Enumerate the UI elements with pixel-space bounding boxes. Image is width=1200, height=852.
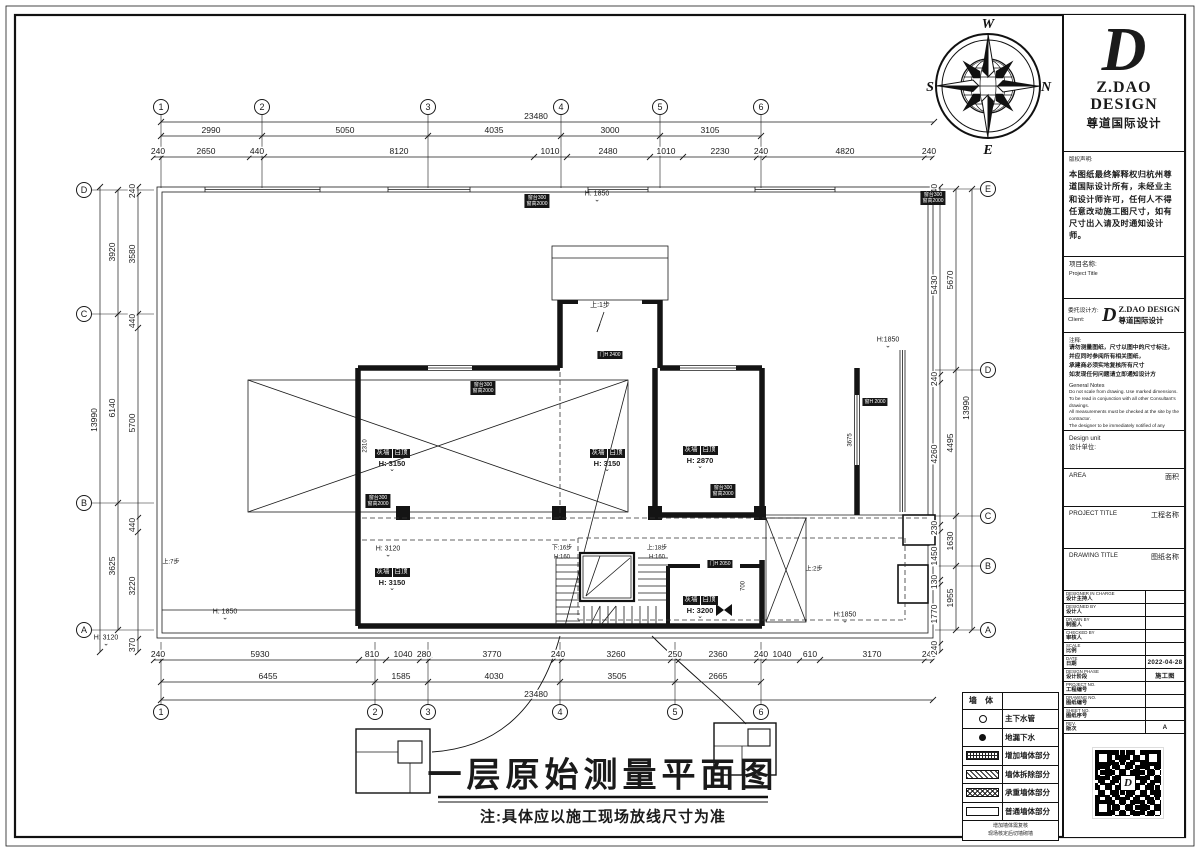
- dim-label: 2360: [708, 650, 729, 659]
- dim-label: 1955: [946, 588, 955, 609]
- copyright-label: 版权声明:: [1069, 155, 1179, 163]
- title-block-row: DRAWN BY制图人: [1064, 617, 1184, 630]
- legend-symbol-hatch-dense: [966, 751, 999, 760]
- wall-height-tag: 门H 2050: [707, 560, 732, 568]
- project-title-cn: 工程名称: [1151, 510, 1179, 545]
- title-block-table: DESIGNER IN CHARGE设计主持人DESIGNED BY设计人DRA…: [1064, 591, 1184, 734]
- dim-label: 810: [364, 650, 380, 659]
- plan-annotation: 上:2步: [805, 567, 822, 574]
- wall-height-tag: 窗H 2000: [862, 398, 887, 406]
- room-finish-tag: 灰墙白顶H: 3150⌄: [374, 560, 410, 591]
- dim-label: 240: [550, 650, 566, 659]
- dim-label: 2480: [598, 147, 619, 156]
- dim-label: 1585: [391, 672, 412, 681]
- copyright-section: 版权声明: 本图纸最终解释权归杭州尊道国际设计所有，未经业主和设计师许可，任何人…: [1064, 152, 1184, 257]
- company-logo: D Z.DAO DESIGN 尊道国际设计: [1064, 15, 1184, 152]
- dim-label: 3505: [607, 672, 628, 681]
- notes-cn-label: 注释:: [1069, 336, 1179, 344]
- legend-label: 墙体拆除部分: [1003, 769, 1058, 780]
- legend-label: 增加墙体部分: [1003, 750, 1058, 761]
- logo-name-1: Z.DAO: [1064, 80, 1184, 97]
- plan-annotation: H:160: [649, 555, 665, 562]
- legend-row: 承重墙体部分: [963, 784, 1058, 803]
- grid-bubble-D: D: [980, 362, 996, 378]
- dim-label: 240: [753, 650, 769, 659]
- dim-label: 23480: [523, 690, 549, 699]
- project-name-section: 项目名称: Project Title: [1064, 257, 1184, 299]
- title-block-value: 2022-04-28: [1146, 656, 1184, 668]
- grid-bubble-4: 4: [553, 99, 569, 115]
- title-block-value: [1146, 695, 1184, 707]
- drawing-title-cn: 图纸名称: [1151, 552, 1179, 587]
- client-label-cn: 委托设计方:: [1068, 307, 1102, 316]
- plan-annotation: 2310: [363, 439, 370, 452]
- title-block-value: [1146, 630, 1184, 642]
- wall-height-tag: 门H 2400: [597, 351, 622, 359]
- drawing-title-section: DRAWING TITLE 图纸名称: [1064, 549, 1184, 591]
- room-finish-tag: 灰墙白顶H: 3150⌄: [589, 441, 625, 472]
- title-block-row: DESIGNED BY设计人: [1064, 604, 1184, 617]
- grid-bubble-1: 1: [153, 99, 169, 115]
- dim-label: 440: [128, 517, 137, 533]
- dim-label: 13990: [90, 407, 99, 433]
- wall-height-tag: 窗台300窗高2000: [470, 381, 495, 395]
- grid-bubble-E: E: [980, 181, 996, 197]
- logo-name-2: DESIGN: [1064, 97, 1184, 114]
- legend-row: 普通墙体部分: [963, 803, 1058, 822]
- grid-bubble-2: 2: [254, 99, 270, 115]
- dim-label: 23480: [523, 112, 549, 121]
- grid-bubble-A: A: [980, 622, 996, 638]
- dim-label: 3920: [108, 242, 117, 263]
- dim-label: 4035: [484, 126, 505, 135]
- grid-bubble-1: 1: [153, 704, 169, 720]
- dim-label: 5670: [946, 270, 955, 291]
- plan-annotation: H:1850⌄: [877, 336, 900, 347]
- dim-label: 440: [249, 147, 265, 156]
- dim-label: 5930: [250, 650, 271, 659]
- room-finish-tag: 灰墙白顶H: 3200⌄: [682, 588, 718, 619]
- dim-label: 240: [128, 183, 137, 199]
- plan-annotation: H:1850⌄: [834, 611, 857, 622]
- title-block-row: REV.版次A: [1064, 721, 1184, 734]
- grid-bubble-C: C: [980, 508, 996, 524]
- legend-footnote-2: 现场核定后切墙砌墙: [963, 831, 1058, 839]
- dim-label: 440: [128, 313, 137, 329]
- qr-code: D: [1093, 748, 1163, 818]
- design-unit-cn: 设计单位:: [1069, 443, 1179, 452]
- client-logo: D Z.DAO DESIGN 尊道国际设计: [1102, 304, 1180, 327]
- room-finish-tag: 灰墙白顶H: 2870⌄: [682, 438, 718, 469]
- project-title-en: PROJECT TITLE: [1069, 510, 1117, 545]
- wall-height-tag: 窗台300窗高2000: [524, 194, 549, 208]
- title-block: D Z.DAO DESIGN 尊道国际设计 版权声明: 本图纸最终解释权归杭州尊…: [1062, 15, 1184, 837]
- qr-center-logo: D: [1120, 775, 1136, 791]
- legend-footnote-1: 增加墙体需复核: [963, 823, 1058, 831]
- area-section: AREA 面积: [1064, 469, 1184, 507]
- wall-height-tag: 窗台300窗高2000: [710, 484, 735, 498]
- dim-label: 5700: [128, 413, 137, 434]
- plan-annotation: H: 3120⌄: [94, 634, 119, 645]
- legend-row: 增加墙体部分: [963, 747, 1058, 766]
- copyright-text: 本图纸最终解释权归杭州尊道国际设计所有，未经业主和设计师许可，任何人不得任意改动…: [1069, 169, 1179, 243]
- project-label-en: Project Title: [1069, 270, 1179, 278]
- plan-annotation: 下:16步: [552, 546, 572, 553]
- title-block-value: [1146, 591, 1184, 603]
- title-block-row: DESIGNER IN CHARGE设计主持人: [1064, 591, 1184, 604]
- grid-bubble-3: 3: [420, 99, 436, 115]
- grid-bubble-5: 5: [667, 704, 683, 720]
- grid-bubble-A: A: [76, 622, 92, 638]
- dim-label: 1770: [930, 604, 939, 625]
- legend-symbol-circle: [979, 715, 987, 723]
- plan-annotation: H: 3120⌄: [376, 545, 401, 556]
- legend-symbol-dot: [979, 734, 986, 741]
- dim-label: 1040: [772, 650, 793, 659]
- client-section: 委托设计方: Client: D Z.DAO DESIGN 尊道国际设计: [1064, 299, 1184, 333]
- title-block-row: DESIGN PHASE设计阶段施工图: [1064, 669, 1184, 682]
- client-label-en: Client:: [1068, 316, 1102, 325]
- grid-bubble-4: 4: [552, 704, 568, 720]
- grid-bubble-6: 6: [753, 704, 769, 720]
- dim-label: 4820: [835, 147, 856, 156]
- general-notes-section: 注释: 请勿测量图纸，尺寸以图中的尺寸标注，并应同时参阅所有相关图纸，承建商必须…: [1064, 333, 1184, 431]
- logo-cn: 尊道国际设计: [1064, 115, 1184, 131]
- legend-label: 主下水管: [1003, 713, 1058, 724]
- dim-label: 2990: [201, 126, 222, 135]
- plan-annotation: 上:1步: [590, 302, 610, 310]
- plan-annotation: 3675: [848, 433, 855, 446]
- legend-row: 墙体拆除部分: [963, 766, 1058, 785]
- plan-annotation: H: 1850⌄: [213, 608, 238, 619]
- dim-label: 8120: [389, 147, 410, 156]
- title-block-value: [1146, 617, 1184, 629]
- legend-symbol-hatch-diag: [966, 770, 999, 779]
- project-title-section: PROJECT TITLE 工程名称: [1064, 507, 1184, 549]
- grid-bubble-B: B: [76, 495, 92, 511]
- dim-label: 370: [128, 637, 137, 653]
- title-block-row: SCALE比例: [1064, 643, 1184, 656]
- legend-label: 普通墙体部分: [1003, 806, 1058, 817]
- dim-label: 3000: [600, 126, 621, 135]
- legend-label: 地漏下水: [1003, 732, 1058, 743]
- plan-annotation: H:160: [554, 555, 570, 562]
- title-block-row: DRAWING NO.图纸编号: [1064, 695, 1184, 708]
- plan-annotation: 上:7步: [162, 560, 179, 567]
- dim-label: 5050: [335, 126, 356, 135]
- grid-bubble-D: D: [76, 182, 92, 198]
- drawing-sheet: W S E N 23480299050504035300031052402650…: [0, 0, 1200, 852]
- legend-row: 主下水管: [963, 710, 1058, 729]
- room-finish-tag: 灰墙白顶H: 3150⌄: [374, 441, 410, 472]
- title-block-row: PROJECT NO.工程编号: [1064, 682, 1184, 695]
- dim-label: 280: [416, 650, 432, 659]
- logo-d-mark: D: [1064, 21, 1184, 80]
- area-cn: 面积: [1165, 472, 1179, 503]
- legend-symbol-hatch-cross: [966, 788, 999, 797]
- title-block-value: [1146, 708, 1184, 720]
- dim-label: 240: [930, 640, 939, 656]
- dim-label: 3770: [482, 650, 503, 659]
- dim-label: 230: [930, 520, 939, 536]
- dim-label: 5430: [930, 275, 939, 296]
- plan-annotation: 上:18步: [647, 546, 667, 553]
- dim-label: 1450: [930, 546, 939, 567]
- dim-label: 240: [921, 147, 937, 156]
- title-block-value: [1146, 682, 1184, 694]
- title-block-row: CHECKED BY审核人: [1064, 630, 1184, 643]
- plan-annotation: H: 1850⌄: [585, 190, 610, 201]
- title-block-row: SHEET NO.图纸序号: [1064, 708, 1184, 721]
- grid-bubble-C: C: [76, 306, 92, 322]
- dim-label: 3170: [862, 650, 883, 659]
- title-block-value: A: [1146, 721, 1184, 733]
- grid-bubble-6: 6: [753, 99, 769, 115]
- design-unit-en: Design unit: [1069, 434, 1179, 443]
- drawing-title-en: DRAWING TITLE: [1069, 552, 1118, 587]
- dim-label: 6455: [258, 672, 279, 681]
- legend-label: 承重墙体部分: [1003, 787, 1058, 798]
- project-label-cn: 项目名称:: [1069, 260, 1179, 270]
- dim-label: 4260: [930, 444, 939, 465]
- drawing-note: 注:具体应以施工现场放线尺寸为准: [480, 806, 726, 827]
- dim-label: 3580: [128, 244, 137, 265]
- dim-label: 130: [930, 574, 939, 590]
- wall-legend: 墙 体 主下水管地漏下水增加墙体部分墙体拆除部分承重墙体部分普通墙体部分 增加墙…: [962, 692, 1059, 841]
- wall-height-tag: 窗台300窗高2000: [920, 191, 945, 205]
- dim-label: 1630: [946, 531, 955, 552]
- dim-label: 2230: [710, 147, 731, 156]
- client-logo-cn: 尊道国际设计: [1118, 315, 1179, 326]
- dim-label: 1010: [656, 147, 677, 156]
- title-block-value: [1146, 604, 1184, 616]
- dim-label: 2665: [708, 672, 729, 681]
- grid-bubble-B: B: [980, 558, 996, 574]
- grid-bubble-3: 3: [420, 704, 436, 720]
- dim-label: 2650: [196, 147, 217, 156]
- dim-label: 240: [930, 371, 939, 387]
- dim-label: 4495: [946, 433, 955, 454]
- dim-label: 3625: [108, 556, 117, 577]
- dim-label: 3260: [606, 650, 627, 659]
- dim-label: 13990: [962, 395, 971, 421]
- legend-header: 墙 体: [963, 693, 1003, 709]
- dim-label: 3105: [700, 126, 721, 135]
- grid-bubble-2: 2: [367, 704, 383, 720]
- dim-label: 240: [150, 147, 166, 156]
- dim-label: 1040: [393, 650, 414, 659]
- drawing-main-title: 一层原始测量平面图: [428, 748, 779, 797]
- dim-label: 3220: [128, 576, 137, 597]
- title-block-value: 施工图: [1146, 669, 1184, 681]
- dim-label: 240: [753, 147, 769, 156]
- client-logo-name: Z.DAO DESIGN: [1118, 305, 1179, 314]
- client-logo-d: D: [1102, 304, 1116, 327]
- title-block-value: [1146, 643, 1184, 655]
- dim-label: 250: [667, 650, 683, 659]
- grid-bubble-5: 5: [652, 99, 668, 115]
- dim-label: 240: [150, 650, 166, 659]
- dim-label: 1010: [540, 147, 561, 156]
- wall-height-tag: 窗台300窗高2000: [365, 494, 390, 508]
- legend-symbol-double: [966, 807, 999, 816]
- dim-label: 610: [802, 650, 818, 659]
- area-en: AREA: [1069, 472, 1086, 503]
- design-unit-section: Design unit 设计单位:: [1064, 431, 1184, 469]
- legend-row: 地漏下水: [963, 729, 1058, 748]
- title-block-row: DATE日期2022-04-28: [1064, 656, 1184, 669]
- plan-annotation: 700: [741, 581, 748, 591]
- dim-label: 6140: [108, 398, 117, 419]
- dim-label: 4030: [484, 672, 505, 681]
